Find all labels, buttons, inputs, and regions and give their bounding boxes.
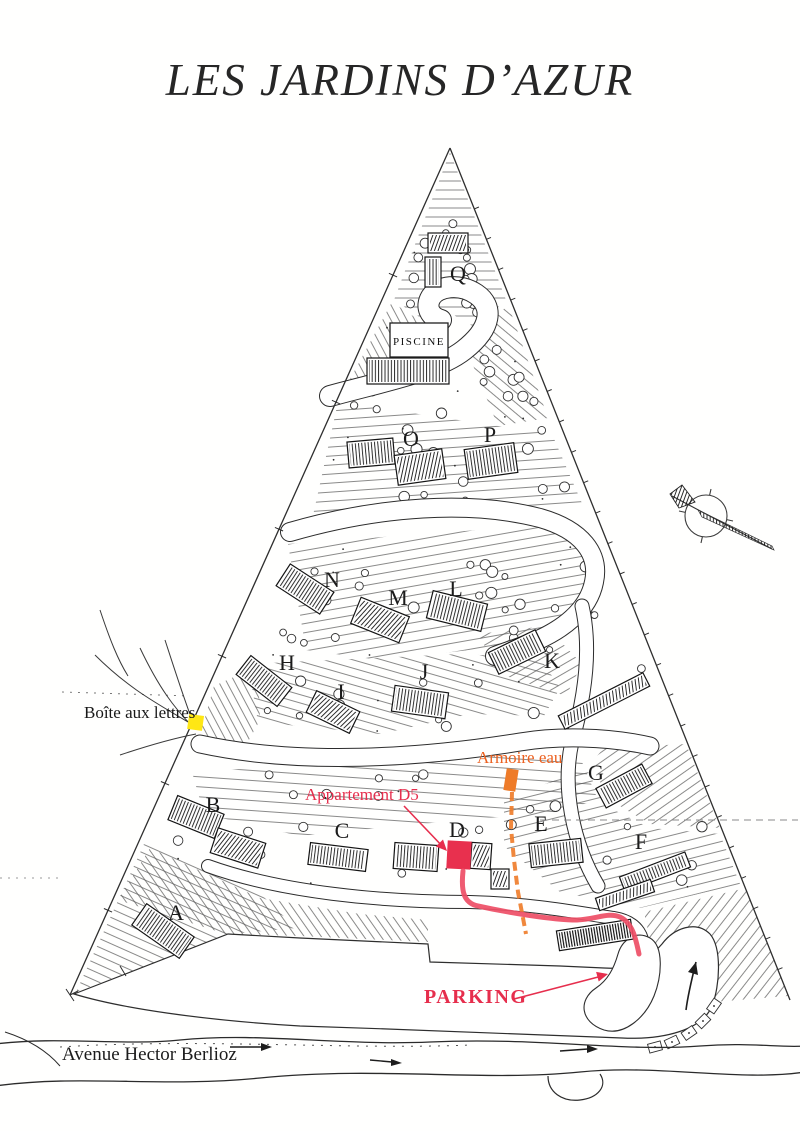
speck	[333, 459, 335, 461]
speck	[560, 564, 562, 566]
speck	[413, 252, 415, 254]
tree-marker	[514, 372, 524, 382]
building-label-a: A	[168, 900, 184, 925]
tree-marker	[408, 602, 419, 613]
tree-marker	[301, 639, 308, 646]
building-label-h: H	[279, 650, 295, 675]
edge-tick	[681, 724, 686, 726]
building-label-q: Q	[450, 261, 466, 286]
speck	[514, 361, 516, 363]
building-hatch	[395, 845, 436, 870]
edge-tick	[523, 329, 528, 331]
speck	[347, 437, 349, 439]
tree-marker	[414, 253, 423, 262]
site-plan: PISCINE A B C D E F G H I J K L M N O P …	[0, 0, 800, 1131]
apartment-d5-marker	[446, 840, 471, 869]
tree-marker	[538, 484, 547, 493]
speck	[472, 664, 474, 666]
edge-tick	[705, 785, 710, 787]
tree-marker	[421, 491, 428, 498]
tree-marker	[467, 561, 474, 568]
tree-marker	[361, 569, 368, 576]
tree-marker	[530, 397, 538, 405]
tree-marker	[474, 679, 482, 687]
building-hatch	[561, 675, 647, 726]
speck	[542, 498, 544, 500]
edge-tick	[547, 390, 552, 392]
edge-tick	[693, 755, 698, 757]
tree-marker	[413, 775, 419, 781]
edge-tick	[620, 572, 625, 574]
tree-marker	[173, 836, 183, 846]
building-label-d: D	[449, 817, 465, 842]
building-hatch	[472, 844, 489, 867]
building-block	[393, 842, 439, 871]
building-label-j: J	[420, 659, 429, 684]
pool-label: PISCINE	[393, 336, 445, 348]
tree-marker	[350, 402, 357, 409]
speck	[272, 654, 274, 656]
speck	[687, 886, 689, 888]
tree-marker	[441, 721, 451, 731]
tree-marker	[486, 587, 497, 598]
tree-marker	[244, 827, 253, 836]
edge-tick	[474, 207, 479, 209]
building-label-o: O	[403, 426, 419, 451]
scanned-site-plan-page: PISCINE A B C D E F G H I J K L M N O P …	[0, 0, 800, 1131]
tree-marker	[419, 770, 428, 779]
building-block	[529, 838, 583, 867]
tree-marker	[296, 713, 302, 719]
building-block	[491, 869, 509, 889]
tree-marker	[503, 391, 513, 401]
building-block	[464, 443, 518, 480]
tree-marker	[515, 599, 525, 609]
edge-tick	[486, 237, 491, 239]
tree-marker	[355, 582, 363, 590]
building-label-b: B	[206, 792, 221, 817]
tree-marker	[449, 220, 457, 228]
tree-marker	[487, 566, 498, 577]
edge-tick	[571, 450, 576, 452]
speck	[457, 390, 459, 392]
tree-marker	[502, 607, 508, 613]
tree-marker	[289, 791, 297, 799]
avenue	[0, 1032, 800, 1100]
mailbox-label: Boîte aux lettres	[84, 703, 195, 722]
tree-marker	[311, 568, 318, 575]
compass-rose-icon	[670, 485, 774, 550]
tree-marker	[398, 869, 406, 877]
building-hatch	[493, 871, 507, 887]
tree-marker	[551, 605, 558, 612]
building-hatch	[430, 235, 466, 251]
speck	[454, 465, 456, 467]
parking-label: PARKING	[424, 986, 527, 1008]
tree-marker	[299, 822, 308, 831]
edge-tick	[608, 542, 613, 544]
speck	[504, 416, 506, 418]
building-label-m: M	[388, 585, 408, 610]
building-hatch	[349, 440, 393, 466]
building-hatch	[369, 360, 447, 382]
building-block	[394, 449, 446, 485]
tree-marker	[676, 875, 687, 886]
speck	[386, 327, 388, 329]
edge-tick	[632, 603, 637, 605]
building-label-e: E	[534, 811, 547, 836]
edge-tick	[754, 907, 759, 909]
tree-marker	[518, 391, 528, 401]
edge-tick	[729, 846, 734, 848]
tree-marker	[560, 482, 570, 492]
tree-marker	[476, 592, 483, 599]
speck	[518, 681, 520, 683]
tree-marker	[480, 355, 489, 364]
tree-marker	[465, 264, 476, 275]
building-block	[210, 828, 266, 868]
building-label-l: L	[449, 576, 462, 601]
pool: PISCINE	[390, 323, 448, 357]
tree-marker	[528, 707, 539, 718]
tree-marker	[458, 477, 468, 487]
speck	[369, 654, 371, 656]
tree-marker	[538, 426, 546, 434]
tree-marker	[296, 676, 306, 686]
edge-tick	[584, 481, 589, 483]
edge-tick	[535, 359, 540, 361]
edge-tick	[717, 816, 722, 818]
edge-tick	[766, 937, 771, 939]
tree-marker	[526, 806, 534, 814]
tree-marker	[287, 634, 296, 643]
traffic-arrows	[230, 1043, 598, 1066]
speck	[377, 700, 379, 702]
speck	[569, 546, 571, 548]
building-block	[425, 257, 441, 287]
tree-marker	[475, 826, 482, 833]
edge-tick	[656, 663, 661, 665]
building-label-f: F	[635, 829, 647, 854]
tree-marker	[502, 574, 508, 580]
building-label-p: P	[484, 422, 496, 447]
edge-tick	[596, 511, 601, 513]
tree-marker	[436, 408, 446, 418]
speck	[342, 548, 344, 550]
edge-tick	[511, 298, 516, 300]
tree-marker	[492, 345, 501, 354]
speck	[376, 730, 378, 732]
tree-marker	[375, 775, 382, 782]
building-label-n: N	[324, 567, 340, 592]
tree-marker	[484, 366, 495, 377]
building-block	[428, 233, 468, 253]
building-label-k: K	[544, 648, 560, 673]
tree-marker	[264, 708, 270, 714]
edge-tick	[741, 876, 746, 878]
apartment-d5-label: Appartement D5	[305, 785, 419, 804]
tree-marker	[522, 443, 533, 454]
building-block	[367, 358, 449, 384]
building-label-c: C	[335, 818, 350, 843]
building-label-i: I	[337, 679, 344, 704]
tree-marker	[409, 273, 419, 283]
building-hatch	[427, 259, 439, 285]
armoire-eau-label: Armoire eau	[477, 748, 563, 767]
speck	[177, 858, 179, 860]
edge-tick	[559, 420, 564, 422]
tree-marker	[331, 634, 339, 642]
tree-marker	[509, 626, 518, 635]
tree-marker	[407, 300, 415, 308]
building-label-g: G	[588, 760, 604, 785]
tree-marker	[591, 612, 598, 619]
building-block	[470, 842, 492, 869]
building-block	[308, 843, 368, 872]
tree-marker	[373, 406, 380, 413]
tree-marker	[550, 801, 561, 812]
avenue-label: Avenue Hector Berlioz	[62, 1044, 237, 1065]
tree-marker	[697, 822, 707, 832]
edge-tick	[669, 694, 674, 696]
speck	[522, 418, 524, 420]
tree-marker	[480, 378, 487, 385]
edge-tick	[644, 633, 649, 635]
tree-marker	[603, 856, 611, 864]
tree-marker	[638, 665, 646, 673]
tree-marker	[280, 629, 287, 636]
edge-tick	[778, 968, 783, 970]
page-title: LES JARDINS D’AZUR	[165, 55, 634, 105]
tree-marker	[624, 823, 630, 829]
tree-marker	[265, 771, 273, 779]
edge-tick	[499, 268, 504, 270]
building-block	[347, 438, 395, 468]
